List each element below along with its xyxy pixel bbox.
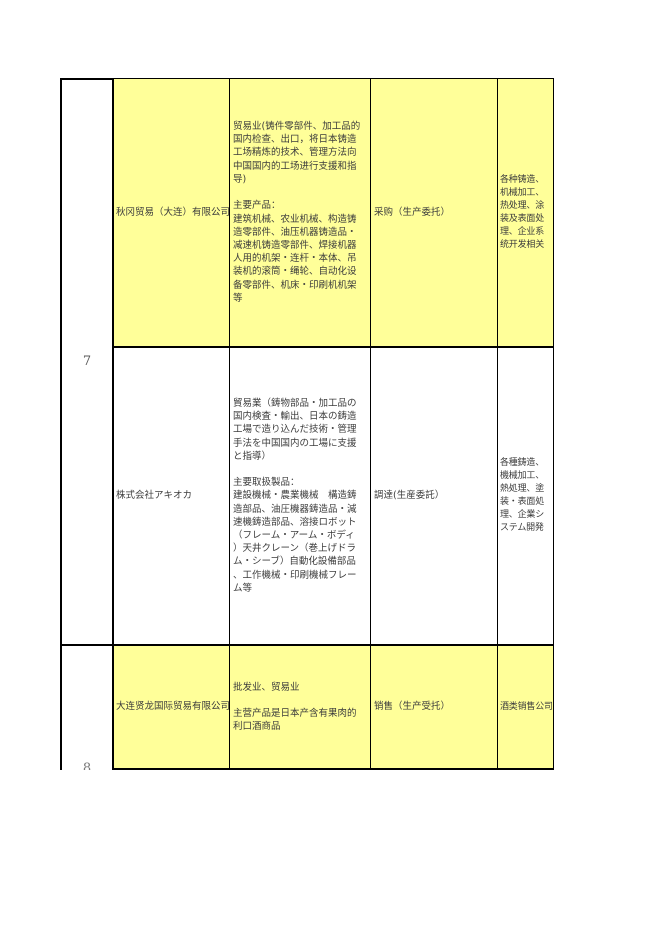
row-number-label: 7: [83, 355, 91, 368]
row-number-label: 8: [62, 762, 112, 770]
spreadsheet-page: 7 秋冈贸易（大连）有限公司 贸易业(铸件零部件、加工品的 国内检查、出口，将日…: [0, 0, 662, 936]
company-cell: 秋冈贸易（大连）有限公司: [114, 78, 230, 348]
business-scope-cell: 貿易業（鋳物部品・加工品の 国内検査・輸出、日本の鋳造 工場で造り込んだ技術・管…: [230, 348, 371, 646]
row-number-cell-8-partial: 8: [60, 646, 114, 770]
business-scope-cell: 贸易业(铸件零部件、加工品的 国内检查、出口，将日本铸造 工场精炼的技术、管理方…: [230, 78, 371, 348]
company-cell: 株式会社アキオカ: [114, 348, 230, 646]
company-cell: 大连贤龙国际贸易有限公司: [114, 646, 230, 770]
cooperation-type-cell: 采购（生产委托）: [371, 78, 498, 348]
cooperation-type-cell: 調達(生産委託）: [371, 348, 498, 646]
row-number-cell-7: 7: [60, 78, 114, 646]
business-scope-cell: 批发业、贸易业 主营产品是日本产含有果肉的 利口酒商品: [230, 646, 371, 770]
partner-category-cell: 各种铸造、 机械加工、 热处理、涂 装及表面处 理、企业系 统开发相关: [498, 78, 554, 348]
company-partnership-table: 7 秋冈贸易（大连）有限公司 贸易业(铸件零部件、加工品的 国内检查、出口，将日…: [60, 78, 554, 770]
partner-category-cell: 酒类销售公司: [498, 646, 554, 770]
cooperation-type-cell: 销售（生产受托）: [371, 646, 498, 770]
partner-category-cell: 各種鋳造、 機械加工、 熱処理、塗 装・表面処 理、企業シ ステム開発: [498, 348, 554, 646]
